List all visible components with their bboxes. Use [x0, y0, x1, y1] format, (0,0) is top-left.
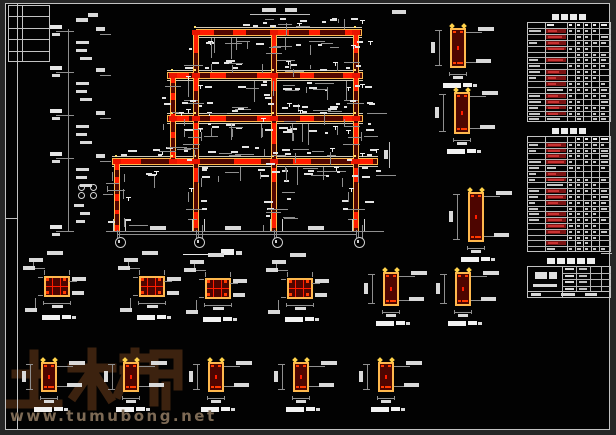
section-rebar-line [207, 288, 229, 289]
dimension-line [214, 38, 215, 53]
rebar-dot [141, 291, 144, 294]
annotation-text-blob [208, 151, 216, 153]
table-cell-text [585, 95, 588, 97]
annotation-text-blob [263, 118, 264, 122]
annotation-text-blob [76, 90, 87, 93]
annotation-text-blob [74, 204, 84, 207]
section-rebar-line [390, 287, 392, 291]
dimension-line [274, 230, 275, 238]
annotation-text-blob [272, 171, 280, 173]
annotation-text-blob [478, 322, 482, 325]
dimension-line [309, 396, 310, 400]
dimension-line [278, 270, 288, 271]
table-cell-text [601, 144, 604, 146]
annotation-text-blob [80, 57, 92, 60]
section-rebar-line [300, 375, 302, 379]
annotation-text-blob [443, 83, 461, 88]
footing-mark [125, 219, 126, 231]
table-cell-text [585, 107, 588, 109]
table-cell-text [569, 155, 572, 157]
annotation-text-blob [52, 160, 60, 163]
dimension-line [43, 303, 71, 304]
annotation-text-blob [362, 167, 368, 169]
dimension-line [292, 398, 310, 399]
table-cell-text [577, 190, 580, 192]
dimension-line [342, 178, 343, 187]
table-cell-text [585, 89, 588, 91]
annotation-text-blob [302, 106, 308, 108]
section-rebar-line [141, 286, 163, 287]
annotation-text-blob [467, 149, 476, 153]
beam-column-joint [270, 116, 278, 121]
dimension-line [284, 121, 296, 122]
table-title-char [570, 128, 577, 134]
annotation-text-blob [347, 159, 352, 161]
footing-mark [113, 219, 114, 231]
annotation-text-blob [280, 18, 286, 20]
annotation-text-blob [320, 112, 327, 114]
dimension-line [283, 85, 295, 86]
dimension-line [453, 138, 454, 142]
table-cell-text [569, 237, 572, 239]
rebar-dot [158, 278, 161, 281]
beam-column-joint [192, 116, 200, 121]
annotation-text-blob [482, 91, 498, 95]
corner-grid-line [8, 28, 50, 29]
dimension-line [106, 231, 384, 232]
table-cell-text [601, 150, 608, 152]
table-cell-text [569, 196, 572, 198]
table-cell-text [577, 167, 580, 169]
dimension-line [310, 45, 311, 55]
dimension-line [124, 174, 125, 183]
annotation-text-blob [300, 110, 301, 114]
rebar-dot [465, 300, 468, 302]
annotation-text-blob [185, 67, 194, 69]
annotation-text-blob [265, 97, 272, 99]
annotation-text-blob [76, 49, 87, 52]
rebar-dot [458, 275, 461, 277]
beam-column-joint [113, 159, 121, 164]
dimension-line [35, 268, 45, 269]
annotation-text-blob [181, 112, 182, 116]
annotation-text-blob [76, 125, 89, 128]
rebar-dot [218, 386, 221, 388]
dimension-line [317, 171, 327, 172]
table-cell-text [593, 42, 597, 44]
annotation-text-blob [22, 371, 26, 382]
cad-sheet: www.tumubong.net [0, 0, 616, 435]
dimension-line [117, 230, 118, 238]
table-red-text [548, 36, 562, 38]
dimension-line [315, 83, 334, 84]
annotation-text-blob [197, 240, 199, 243]
annotation-text-blob [72, 291, 84, 295]
dimension-line [440, 274, 447, 275]
rebar-dot [211, 365, 214, 367]
annotation-text-blob [226, 60, 235, 62]
dimension-line [108, 389, 115, 390]
table-cell-text [593, 95, 596, 97]
table-cell-text [569, 190, 572, 192]
annotation-text-blob [76, 133, 87, 136]
table-row-line [527, 229, 611, 230]
dimension-line [344, 126, 360, 127]
rebar-segment [300, 116, 314, 121]
table-cell-text [593, 144, 597, 146]
rebar-dot [289, 280, 292, 283]
beam-column-joint [352, 116, 360, 121]
table-cell-text [593, 208, 596, 210]
dimension-line [343, 144, 360, 145]
dimension-line [266, 212, 281, 213]
annotation-text-blob [346, 67, 350, 69]
table-cell-text [569, 213, 572, 215]
annotation-text-blob [386, 314, 396, 317]
table-row-line [527, 246, 611, 247]
annotation-text-blob [392, 10, 406, 14]
annotation-text-blob [353, 45, 354, 49]
rebar-segment [309, 30, 321, 35]
dimension-line [346, 81, 347, 101]
annotation-text-blob [188, 109, 189, 113]
table-red-text [548, 196, 563, 198]
dimension-line [139, 270, 140, 275]
annotation-text-blob [309, 130, 318, 132]
table-red-text [548, 59, 563, 61]
rebar-dot [460, 62, 463, 64]
table-cell-text [547, 89, 563, 91]
annotation-text-blob [274, 371, 278, 382]
table-cell-text [601, 208, 607, 210]
dimension-line [363, 364, 370, 365]
joint-tick [115, 155, 117, 157]
table-cell-text [529, 208, 538, 210]
table-red-text [548, 113, 558, 115]
dimension-line [184, 130, 185, 136]
table-row-line [527, 177, 611, 178]
table-cell-text [569, 184, 572, 186]
dimension-line [201, 178, 202, 187]
annotation-text-blob [328, 108, 337, 110]
table-cell-text [547, 248, 555, 250]
title-block-title-char [557, 258, 565, 264]
annotation-text-blob [121, 154, 127, 156]
misc-line [389, 142, 390, 168]
dimension-line [56, 31, 74, 32]
dimension-line [346, 209, 365, 210]
dimension-line [368, 274, 375, 275]
dimension-line [232, 65, 233, 73]
table-cell-text [529, 196, 538, 198]
annotation-text-blob [208, 253, 224, 257]
annotation-text-blob [80, 141, 92, 144]
table-cell-text [601, 179, 606, 181]
table-row-line [527, 46, 611, 47]
annotation-text-blob [447, 149, 465, 154]
table-cell-text [585, 190, 588, 192]
annotation-text-blob [308, 170, 314, 172]
table-cell-text [601, 113, 605, 115]
annotation-text-blob [351, 18, 357, 20]
table-cell-text [529, 202, 535, 204]
annotation-text-blob [263, 22, 267, 24]
table-cell-text [577, 89, 580, 91]
rebar-dot [381, 386, 384, 388]
annotation-text-blob [362, 176, 370, 178]
rebar-dot [381, 365, 384, 367]
table-cell-text [569, 161, 572, 163]
table-cell-text [601, 107, 605, 109]
table-red-text [548, 242, 558, 244]
dimension-line [372, 274, 373, 304]
dimension-line [225, 172, 239, 173]
dimension-line [471, 276, 487, 277]
rebar-dot [457, 128, 460, 130]
dimension-line [292, 396, 293, 400]
dimension-line [313, 89, 328, 90]
table-cell-text [593, 138, 597, 140]
dimension-line [56, 72, 74, 73]
annotation-text-blob [579, 268, 587, 270]
joint-tick [272, 112, 274, 114]
joint-tick [194, 112, 196, 114]
dimension-line [377, 398, 395, 399]
dimension-line [163, 124, 164, 131]
table-cell-text [547, 24, 554, 26]
dimension-line [454, 312, 472, 313]
rebar-dot [207, 293, 210, 296]
table-red-text [548, 150, 560, 152]
rebar-segment [171, 93, 175, 100]
annotation-text-blob [182, 102, 188, 104]
annotation-text-blob [371, 407, 389, 412]
dimension-line [103, 194, 113, 195]
rebar-dot [296, 386, 299, 388]
dimension-line [283, 217, 296, 218]
annotation-text-blob [221, 407, 230, 411]
dimension-line [295, 153, 296, 163]
dimension-line [457, 194, 458, 240]
dimension-line [123, 189, 124, 199]
dimension-line [240, 167, 241, 181]
dimension-line [188, 81, 189, 97]
table-cell-text [529, 213, 539, 215]
table-cell-text [577, 219, 580, 221]
annotation-text-blob [311, 87, 315, 89]
annotation-text-blob [225, 226, 241, 230]
annotation-text-blob [258, 169, 264, 171]
annotation-text-blob [76, 82, 89, 85]
dimension-line [290, 62, 291, 69]
table-cell-text [577, 77, 580, 79]
table-cell-text [529, 161, 541, 163]
beam-column-joint [270, 73, 278, 78]
section-rebar-line [462, 287, 464, 291]
rebar-segment [115, 210, 119, 215]
table-cell-text [585, 83, 588, 85]
dimension-line [285, 90, 299, 91]
legend-circle [90, 184, 97, 191]
section-rebar-line [385, 375, 387, 379]
table-cell-text [577, 213, 580, 215]
dimension-line [194, 150, 195, 157]
table-cell-text [577, 237, 580, 239]
table-red-text [548, 219, 562, 221]
rebar-dot [453, 31, 456, 33]
dimension-line [435, 65, 442, 66]
dimension-line [377, 396, 378, 400]
beam-column-joint [352, 30, 360, 35]
table-cell-text [529, 190, 539, 192]
binding-margin-line [17, 3, 18, 430]
annotation-text-blob [396, 321, 405, 325]
table-cell-text [529, 113, 540, 115]
dimension-line [260, 172, 261, 179]
rebar-dot [471, 195, 474, 197]
misc-line [5, 218, 17, 219]
annotation-text-blob [404, 383, 419, 387]
table-cell-text [577, 107, 580, 109]
rebar-dot [453, 62, 456, 64]
table-cell-text [577, 248, 581, 250]
annotation-text-blob [202, 176, 210, 178]
annotation-text-blob [167, 316, 171, 319]
rebar-dot [51, 365, 54, 367]
dimension-line [285, 71, 304, 72]
annotation-text-blob [261, 175, 269, 177]
annotation-text-blob [306, 407, 315, 411]
dimension-line [282, 364, 283, 390]
table-row-line [527, 217, 611, 218]
annotation-text-blob [436, 283, 440, 294]
table-cell-text [585, 36, 588, 38]
annotation-text-blob [458, 314, 468, 317]
annotation-text-blob [158, 154, 162, 156]
dimension-line [201, 132, 202, 141]
table-row-line [527, 194, 611, 195]
dimension-line [211, 128, 212, 136]
dimension-line [312, 283, 320, 284]
table-cell-text [585, 213, 588, 215]
table-red-text [548, 155, 559, 157]
table-row-line [527, 40, 611, 41]
annotation-text-blob [50, 109, 62, 113]
rebar-dot [46, 278, 49, 281]
annotation-text-blob [335, 126, 336, 130]
table-cell-text [585, 65, 588, 67]
annotation-text-blob [335, 62, 336, 66]
dimension-line [218, 176, 219, 182]
dimension-line [211, 64, 212, 72]
table-col-line [575, 22, 576, 122]
annotation-text-blob [231, 151, 239, 153]
annotation-text-blob [238, 86, 246, 88]
dimension-line [321, 43, 334, 44]
dimension-line [184, 148, 199, 149]
annotation-text-blob [52, 74, 60, 77]
dimension-line [268, 209, 288, 210]
annotation-text-blob [295, 307, 306, 310]
table-red-text [548, 161, 564, 163]
dimension-line [56, 115, 74, 116]
table-cell-text [529, 118, 539, 120]
table-cell-text [593, 71, 596, 73]
table-red-text [548, 173, 556, 175]
annotation-text-blob [52, 33, 60, 36]
table-cell-text [577, 196, 580, 198]
dimension-line [164, 281, 172, 282]
annotation-text-blob [325, 132, 328, 134]
annotation-text-blob [137, 315, 155, 320]
dimension-line [196, 270, 206, 271]
table-row-line [527, 34, 611, 35]
table-cell-text [585, 155, 588, 157]
annotation-text-blob [370, 149, 376, 151]
annotation-text-blob [149, 383, 164, 387]
dimension-line [106, 183, 119, 184]
table-cell-text [529, 144, 538, 146]
section-rebar-line [457, 46, 459, 50]
dimension-line [470, 138, 471, 142]
table-cell-text [601, 118, 606, 120]
dimension-line [26, 364, 33, 365]
rebar-dot [464, 95, 467, 97]
annotation-text-blob [156, 171, 157, 175]
annotation-text-blob [391, 407, 400, 411]
table-red-text [548, 202, 558, 204]
annotation-text-blob [357, 41, 363, 43]
rebar-segment [234, 159, 261, 164]
table-cell-text [601, 101, 608, 103]
table-cell-text [569, 95, 572, 97]
slab-line [112, 156, 378, 157]
dimension-line [164, 270, 165, 275]
annotation-text-blob [343, 208, 347, 210]
annotation-text-blob [342, 200, 348, 202]
table-cell-text [585, 184, 588, 186]
title-block-row-line [562, 279, 611, 280]
section-rebar-line [289, 288, 311, 289]
annotation-text-blob [376, 149, 377, 153]
annotation-text-blob [369, 103, 375, 105]
annotation-text-blob [118, 240, 120, 243]
table-red-text [548, 231, 560, 233]
table-red-text [548, 144, 561, 146]
table-cell-text [569, 83, 572, 85]
annotation-text-blob [202, 167, 208, 169]
dimension-line [344, 62, 360, 63]
annotation-text-blob [476, 59, 491, 63]
rebar-dot [126, 365, 129, 367]
annotation-text-blob [142, 251, 158, 255]
dimension-line [224, 366, 240, 367]
annotation-text-blob [296, 400, 306, 403]
table-cell-text [593, 190, 596, 192]
annotation-text-blob [293, 105, 300, 107]
slab-line [196, 27, 362, 28]
annotation-text-blob [491, 258, 495, 261]
annotation-text-blob [307, 152, 311, 154]
dimension-line [100, 75, 111, 76]
table-cell-text [601, 138, 608, 140]
annotation-text-blob [336, 103, 340, 105]
table-cell-text [569, 248, 572, 250]
annotation-text-blob [535, 272, 547, 279]
table-row-line [527, 116, 611, 117]
dimension-line [266, 53, 282, 54]
annotation-text-blob [266, 268, 278, 272]
